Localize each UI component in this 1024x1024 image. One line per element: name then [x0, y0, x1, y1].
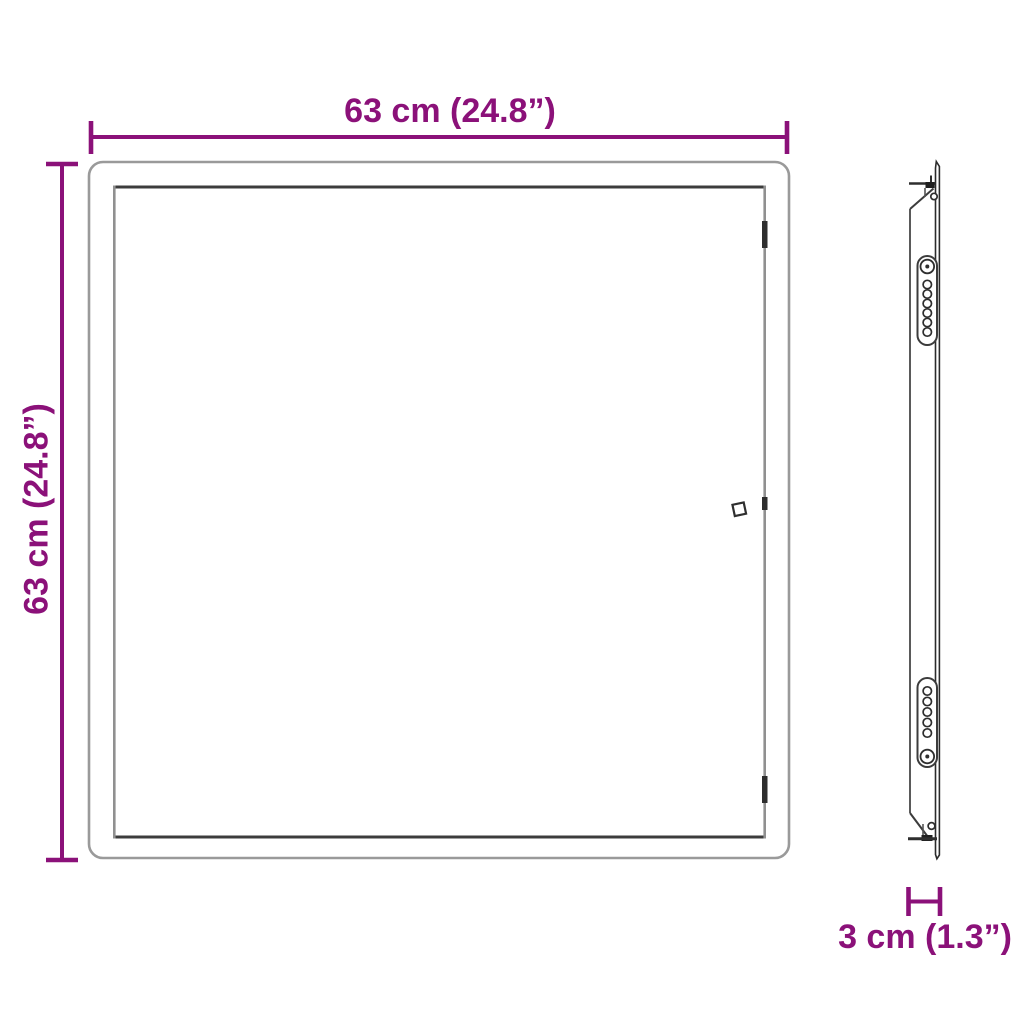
depth-dimension-line: [909, 887, 941, 916]
hinge-mark-top: [762, 221, 768, 248]
side-view: [908, 162, 939, 859]
latch-square: [732, 502, 746, 516]
top-connector-strip: [918, 256, 938, 345]
top-connector-hole: [923, 318, 931, 326]
front-view: [89, 162, 789, 858]
bottom-connector-hole: [923, 697, 931, 705]
magnet-mark-middle: [762, 497, 768, 510]
top-connector-hole: [923, 309, 931, 317]
bottom-connector-hole: [923, 729, 931, 737]
bottom-connector-hole: [923, 708, 931, 716]
top-connector-hole: [923, 299, 931, 307]
hinge-mark-bottom: [762, 776, 768, 803]
top-connector-hole: [923, 328, 931, 336]
bottom-screw-hole: [928, 823, 935, 830]
top-flange-block: [926, 182, 935, 188]
bottom-connector-pin: [925, 755, 929, 759]
diagram-artwork: [0, 0, 1024, 1024]
bottom-connector-hole: [923, 687, 931, 695]
side-bottom-bevel: [910, 813, 928, 837]
height-dimension-label: 63 cm (24.8”): [18, 403, 55, 615]
top-mount-bracket: [909, 176, 937, 200]
top-screw-hole: [931, 193, 937, 199]
dimension-diagram: 63 cm (24.8”) 63 cm (24.8”) 3 cm (1.3”): [0, 0, 1024, 1024]
bottom-connector-hole: [923, 718, 931, 726]
top-connector-pin: [925, 265, 929, 269]
top-connector-hole: [923, 290, 931, 298]
bottom-mount-bracket: [908, 823, 937, 841]
top-connector-hole: [923, 280, 931, 288]
depth-dimension-label: 3 cm (1.3”): [838, 919, 1012, 956]
bottom-connector-strip: [918, 678, 938, 767]
front-outer-frame: [89, 162, 789, 858]
side-top-bevel: [910, 189, 934, 210]
width-dimension-label: 63 cm (24.8”): [344, 93, 556, 130]
